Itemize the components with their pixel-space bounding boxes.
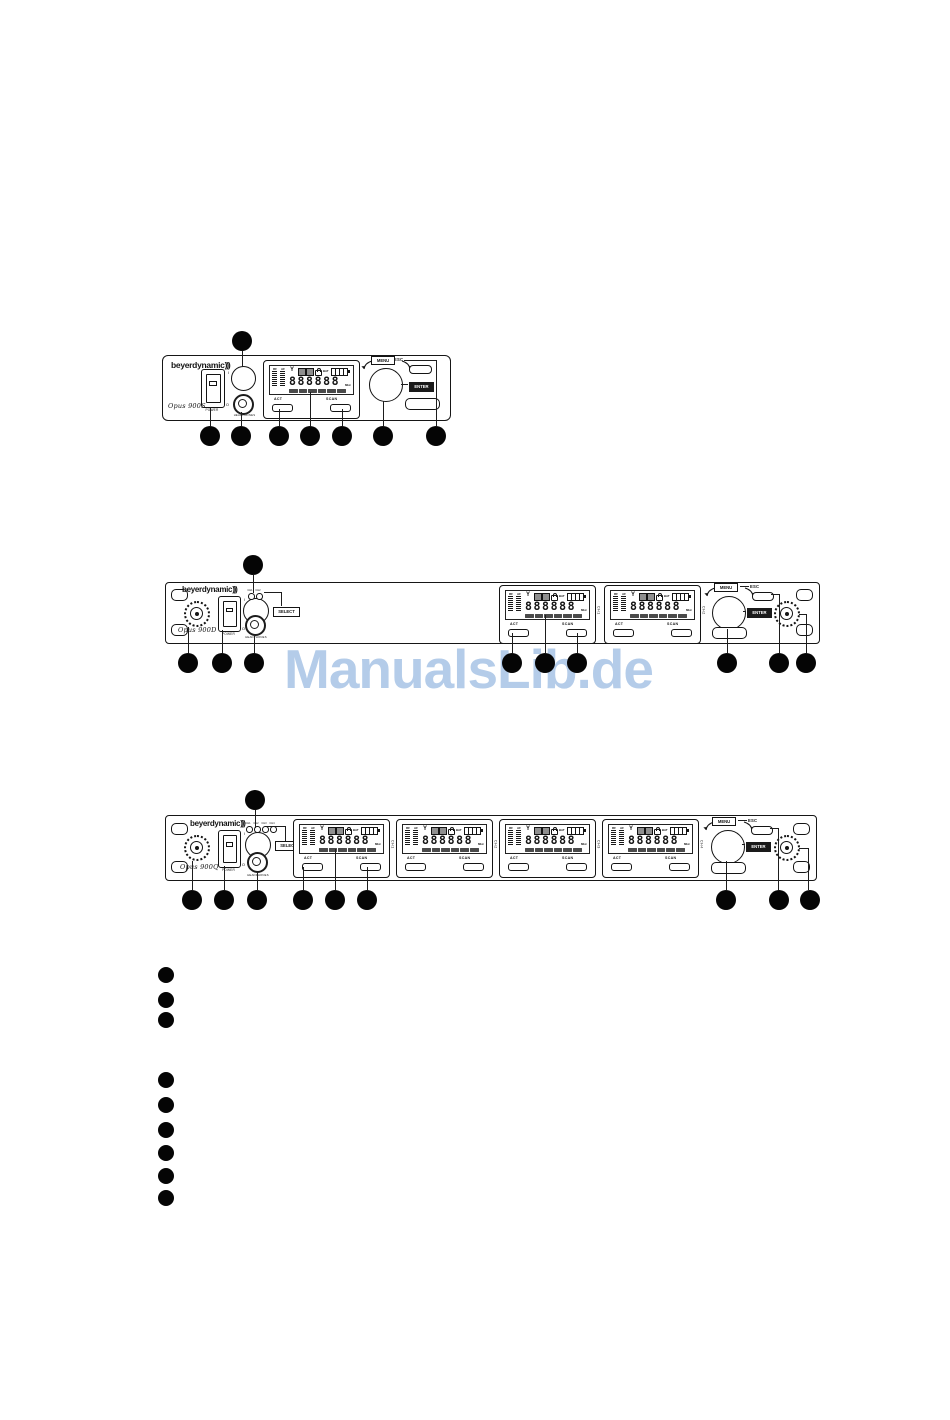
- frequency-digits: 888888: [525, 834, 576, 846]
- brand-logo: beyerdynamic))): [190, 819, 245, 828]
- meter-bars: [508, 830, 514, 845]
- lcd-display: RFAFYBAT888888MHz: [299, 824, 384, 854]
- receiver-display-module: RFAFYBAT888888MHzACTSCANCH3: [499, 819, 596, 878]
- battery-label: BAT: [353, 828, 359, 832]
- battery-cell: [580, 594, 583, 600]
- meter-bar: [302, 840, 307, 841]
- scan-label: SCAN: [667, 622, 678, 626]
- meter-bar: [272, 377, 277, 378]
- esc-label: ESC: [750, 584, 759, 589]
- status-label: [630, 614, 639, 618]
- meter-bar: [508, 600, 513, 601]
- meter-bar: [405, 836, 410, 837]
- status-label: [460, 848, 469, 852]
- frequency-unit: MHz: [375, 842, 381, 846]
- lcd-display: RFAFYBAT888888MHz: [269, 365, 354, 395]
- list-bullet: [158, 1072, 174, 1088]
- meter-bar: [613, 600, 618, 601]
- callout-dot: [717, 653, 737, 673]
- rack-mount-slot: [793, 823, 810, 835]
- status-label: [441, 848, 450, 852]
- status-label: [573, 614, 582, 618]
- status-label: [563, 848, 572, 852]
- antenna-icon: Y: [290, 367, 294, 373]
- battery-cell: [344, 369, 347, 375]
- meter-bar: [619, 838, 624, 839]
- act-label: ACT: [274, 397, 282, 401]
- meter-bar: [413, 842, 418, 843]
- callout-dot: [293, 890, 313, 910]
- meter-column: RF: [405, 826, 411, 846]
- status-label: [432, 848, 441, 852]
- receiver-display-module: RFAFYBAT888888MHzACTSCANCH1: [293, 819, 390, 878]
- brand-logo: beyerdynamic))): [182, 585, 237, 594]
- antenna-connector-a: [184, 835, 210, 861]
- act-label: ACT: [613, 856, 621, 860]
- scan-button: [360, 863, 381, 871]
- meter-bar: [413, 838, 418, 839]
- frequency-unit: MHz: [581, 608, 587, 612]
- meter-bar: [272, 375, 277, 376]
- meter-bar: [508, 840, 513, 841]
- meter-bars: [405, 830, 411, 845]
- meter-bar: [302, 830, 307, 831]
- status-label: [525, 848, 534, 852]
- status-label: [319, 848, 328, 852]
- callout-dot: [426, 426, 446, 446]
- channel-led-label: CH2: [253, 589, 263, 592]
- meter-bar: [611, 838, 616, 839]
- meter-bars: [516, 596, 522, 611]
- channel-led-label: CH4: [267, 822, 277, 825]
- meter-label: AF: [280, 367, 286, 371]
- status-label: [554, 848, 563, 852]
- meter-column: AF: [619, 826, 625, 846]
- callout-dot: [800, 890, 820, 910]
- meter-bar: [280, 377, 285, 378]
- status-label: [318, 389, 327, 393]
- callout-dot: [332, 426, 352, 446]
- model-name: Opus 900D: [178, 626, 217, 634]
- status-label-row: [628, 848, 685, 852]
- list-bullet: [158, 1168, 174, 1184]
- meter-bar: [310, 830, 315, 831]
- meter-bar: [508, 832, 513, 833]
- power-rocker: [223, 835, 237, 863]
- channel-led: [256, 593, 263, 600]
- status-label: [657, 848, 666, 852]
- brand-mark-icon: ))): [225, 360, 230, 370]
- meter-bar: [413, 836, 418, 837]
- headphone-jack: [247, 852, 268, 873]
- meter-column: RF: [272, 367, 278, 387]
- scan-button: [463, 863, 484, 871]
- channel-label: CH3: [597, 840, 601, 849]
- scan-label: SCAN: [459, 856, 470, 860]
- status-label-row: [289, 389, 346, 393]
- meter-bar: [508, 836, 513, 837]
- meter-bar: [272, 371, 277, 372]
- act-button: [272, 404, 293, 412]
- meter-label: AF: [516, 592, 522, 596]
- meter-bar: [611, 834, 616, 835]
- lcd-display: RFAFYBAT888888MHz: [402, 824, 487, 854]
- meter-bar: [302, 832, 307, 833]
- callout-line: [242, 351, 243, 367]
- battery-cell: [580, 828, 583, 834]
- status-label: [638, 848, 647, 852]
- status-label-row: [525, 614, 582, 618]
- meter-column: RF: [508, 592, 514, 612]
- power-switch: I O: [218, 596, 241, 632]
- callout-line: [738, 820, 747, 821]
- callout-dot: [535, 653, 555, 673]
- channel-label: CH1: [597, 606, 601, 615]
- battery-label: BAT: [323, 369, 329, 373]
- meter-bar: [621, 598, 626, 599]
- meter-bar: [405, 840, 410, 841]
- meter-bar: [280, 373, 285, 374]
- model-name: Opus 900Q: [180, 863, 219, 871]
- antenna-icon: Y: [320, 826, 324, 832]
- enter-label: ENTER: [409, 382, 434, 392]
- meter-bar: [611, 842, 616, 843]
- callout-dot: [244, 653, 264, 673]
- meter-bar: [516, 606, 521, 607]
- meter-bar: [280, 383, 285, 384]
- receiver-display-module: RFAFYBAT888888MHzACTSCANCH2: [396, 819, 493, 878]
- headphones-label: HEADPHONES: [222, 413, 267, 417]
- meter-bar: [280, 379, 285, 380]
- esc-button: [409, 365, 432, 374]
- list-bullet: [158, 1012, 174, 1028]
- antenna-connector-b: [774, 601, 800, 627]
- meter-bar: [280, 381, 285, 382]
- manualslib-watermark: ManualsLib.de: [284, 637, 653, 701]
- meter-bar: [310, 834, 315, 835]
- meter-bar: [405, 844, 410, 845]
- meter-bar: [619, 840, 624, 841]
- callout-line: [281, 592, 282, 606]
- meter-bar: [413, 844, 418, 845]
- frequency-digits: 888888: [289, 375, 340, 387]
- lcd-display: RFAFYBAT888888MHz: [505, 590, 590, 620]
- status-label: [422, 848, 431, 852]
- status-label: [628, 848, 637, 852]
- status-label: [348, 848, 357, 852]
- status-label-row: [630, 614, 687, 618]
- callout-line: [303, 867, 304, 890]
- meter-column: RF: [508, 826, 514, 846]
- meter-label: AF: [516, 826, 522, 830]
- meter-bar: [405, 838, 410, 839]
- meter-bar: [516, 608, 521, 609]
- meter-bar: [516, 610, 521, 611]
- rocker-notch: [209, 381, 217, 386]
- frequency-digits: 888888: [525, 600, 576, 612]
- status-label: [678, 614, 687, 618]
- callout-dot: [200, 426, 220, 446]
- meter-bars: [302, 830, 308, 845]
- menu-jog-knob: [369, 368, 403, 402]
- callout-line: [743, 611, 746, 612]
- meter-bar: [272, 383, 277, 384]
- frequency-unit: MHz: [686, 608, 692, 612]
- meter-bar: [508, 604, 513, 605]
- callout-dot: [231, 426, 251, 446]
- callout-dot: [243, 555, 263, 575]
- meter-bar: [508, 842, 513, 843]
- callout-line: [254, 636, 255, 653]
- meter-bar: [413, 840, 418, 841]
- status-label: [289, 389, 298, 393]
- callout-line: [779, 594, 780, 653]
- channel-label: CH2: [494, 840, 498, 849]
- antenna-icon: Y: [629, 826, 633, 832]
- status-label: [659, 614, 668, 618]
- callout-dot: [567, 653, 587, 673]
- status-label: [357, 848, 366, 852]
- list-bullet: [158, 992, 174, 1008]
- device-panel-opus-900s: beyerdynamic))) I O POWER Opus 900S HEAD…: [162, 355, 451, 421]
- meter-bar: [621, 608, 626, 609]
- meter-bar: [405, 834, 410, 835]
- callout-dot: [502, 653, 522, 673]
- status-label: [525, 614, 534, 618]
- status-label: [647, 848, 656, 852]
- callout-line: [310, 392, 311, 426]
- meter-column: AF: [516, 826, 522, 846]
- meter-bar: [621, 604, 626, 605]
- callout-dot: [214, 890, 234, 910]
- power-rocker: [223, 601, 237, 627]
- meter-bar: [516, 844, 521, 845]
- meter-bars: [310, 830, 316, 845]
- status-label: [299, 389, 308, 393]
- callout-line: [342, 409, 343, 426]
- meter-label: RF: [405, 826, 411, 830]
- status-label-row: [422, 848, 479, 852]
- meter-bar: [413, 834, 418, 835]
- battery-cell: [685, 594, 688, 600]
- headphones-label: HEADPHONES: [232, 635, 280, 639]
- status-label: [554, 614, 563, 618]
- callout-line: [512, 633, 513, 653]
- battery-cell: [477, 828, 480, 834]
- status-label: [573, 848, 582, 852]
- menu-label: MENU: [371, 356, 395, 365]
- battery-label: BAT: [456, 828, 462, 832]
- brand-text: beyerdynamic: [182, 585, 232, 594]
- device-panel-opus-900q: beyerdynamic))) I O POWER Opus 900Q SELE…: [165, 815, 817, 881]
- channel-label: CH4: [700, 840, 704, 849]
- list-bullet: [158, 1122, 174, 1138]
- meter-bar: [613, 604, 618, 605]
- lcd-display: RFAFYBAT888888MHz: [505, 824, 590, 854]
- meter-column: AF: [621, 592, 627, 612]
- callout-line: [726, 861, 727, 890]
- callout-dot: [269, 426, 289, 446]
- meter-bar: [405, 830, 410, 831]
- meter-bar: [621, 596, 626, 597]
- callout-line: [222, 630, 223, 653]
- callout-line: [577, 633, 578, 653]
- meter-bar: [619, 836, 624, 837]
- status-label: [451, 848, 460, 852]
- headphones-label: HEADPHONES: [234, 873, 282, 877]
- list-bullet: [158, 1097, 174, 1113]
- meter-label: AF: [619, 826, 625, 830]
- meter-bar: [613, 606, 618, 607]
- callout-dot: [373, 426, 393, 446]
- receiver-display-module: RFAFYBAT888888MHzACTSCANCH2: [604, 585, 701, 644]
- volume-knob: [231, 366, 256, 391]
- rack-mount-slot: [171, 823, 188, 835]
- meter-bar: [516, 838, 521, 839]
- status-label-row: [525, 848, 582, 852]
- callout-line: [808, 848, 809, 890]
- meter-column: RF: [611, 826, 617, 846]
- meter-label: RF: [302, 826, 308, 830]
- act-button: [508, 863, 529, 871]
- meter-bar: [621, 600, 626, 601]
- meter-bar: [272, 381, 277, 382]
- meter-bar: [516, 832, 521, 833]
- callout-line: [264, 592, 282, 593]
- meter-column: AF: [413, 826, 419, 846]
- callout-line: [192, 861, 193, 890]
- meter-bar: [516, 598, 521, 599]
- meter-bar: [613, 602, 618, 603]
- callout-dot: [182, 890, 202, 910]
- meter-bars: [619, 830, 625, 845]
- status-label: [544, 848, 553, 852]
- meter-bar: [310, 836, 315, 837]
- esc-label: ESC: [394, 357, 403, 362]
- meter-bar: [621, 610, 626, 611]
- meter-label: RF: [272, 367, 278, 371]
- frequency-digits: 888888: [319, 834, 370, 846]
- meter-bar: [619, 832, 624, 833]
- meter-bar: [405, 832, 410, 833]
- meter-bars: [272, 371, 278, 386]
- list-bullet: [158, 1145, 174, 1161]
- esc-label: ESC: [748, 818, 757, 823]
- enter-label: ENTER: [746, 842, 771, 852]
- status-label: [367, 848, 376, 852]
- model-name: Opus 900S: [168, 402, 206, 410]
- scan-button: [566, 863, 587, 871]
- meter-bar: [619, 834, 624, 835]
- act-button: [613, 629, 634, 637]
- callout-line: [404, 360, 437, 361]
- meter-bar: [621, 606, 626, 607]
- meter-bar: [508, 834, 513, 835]
- act-label: ACT: [304, 856, 312, 860]
- receiver-display-module: RFAFYBAT888888MHzACTSCANCH4: [602, 819, 699, 878]
- meter-label: RF: [611, 826, 617, 830]
- callout-line: [188, 627, 189, 653]
- switch-on-mark: I: [244, 831, 245, 836]
- list-bullet: [158, 1190, 174, 1206]
- meter-label: AF: [413, 826, 419, 830]
- antenna-icon: Y: [526, 826, 530, 832]
- callout-dot: [212, 653, 232, 673]
- channel-label: CH2: [702, 606, 706, 615]
- battery-label: BAT: [559, 594, 565, 598]
- callout-dot: [247, 890, 267, 910]
- meter-bar: [272, 385, 277, 386]
- meter-bar: [508, 606, 513, 607]
- scan-button: [330, 404, 351, 412]
- list-bullet: [158, 967, 174, 983]
- meter-bar: [516, 840, 521, 841]
- meter-bar: [611, 832, 616, 833]
- blank-button: [712, 627, 747, 639]
- meter-bar: [272, 373, 277, 374]
- meter-bar: [613, 596, 618, 597]
- meter-bar: [516, 830, 521, 831]
- meter-bar: [508, 844, 513, 845]
- callout-line: [742, 844, 745, 845]
- meter-bar: [613, 598, 618, 599]
- meter-label: RF: [508, 592, 514, 596]
- callout-line: [727, 629, 728, 653]
- frequency-unit: MHz: [478, 842, 484, 846]
- callout-line: [545, 615, 546, 653]
- status-label: [676, 848, 685, 852]
- callout-line: [740, 586, 749, 587]
- meter-bar: [272, 379, 277, 380]
- frequency-digits: 888888: [422, 834, 473, 846]
- meter-label: RF: [613, 592, 619, 596]
- meter-bars: [613, 596, 619, 611]
- callout-dot: [325, 890, 345, 910]
- act-label: ACT: [510, 622, 518, 626]
- callout-line: [224, 866, 225, 890]
- callout-dot: [769, 890, 789, 910]
- meter-bar: [405, 842, 410, 843]
- switch-off-mark: O: [242, 862, 245, 867]
- meter-label: AF: [621, 592, 627, 596]
- act-button: [302, 863, 323, 871]
- menu-label: MENU: [714, 583, 738, 592]
- status-label: [337, 389, 346, 393]
- meter-bar: [280, 385, 285, 386]
- menu-jog-knob: [712, 596, 746, 630]
- meter-bar: [621, 602, 626, 603]
- meter-bar: [302, 844, 307, 845]
- meter-bar: [310, 844, 315, 845]
- battery-cell: [374, 828, 377, 834]
- meter-bar: [613, 608, 618, 609]
- callout-dot: [769, 653, 789, 673]
- status-label: [668, 614, 677, 618]
- status-label: [666, 848, 675, 852]
- meter-bar: [611, 844, 616, 845]
- meter-column: AF: [280, 367, 286, 387]
- meter-bar: [508, 830, 513, 831]
- callout-line: [806, 614, 807, 653]
- callout-line: [401, 384, 408, 385]
- meter-column: RF: [613, 592, 619, 612]
- callout-dot: [245, 790, 265, 810]
- callout-line: [383, 401, 384, 426]
- meter-bar: [516, 834, 521, 835]
- blank-button: [711, 862, 746, 874]
- meter-bar: [280, 375, 285, 376]
- receiver-display-module: RFAFYBAT888888MHzACTSCANCH1: [499, 585, 596, 644]
